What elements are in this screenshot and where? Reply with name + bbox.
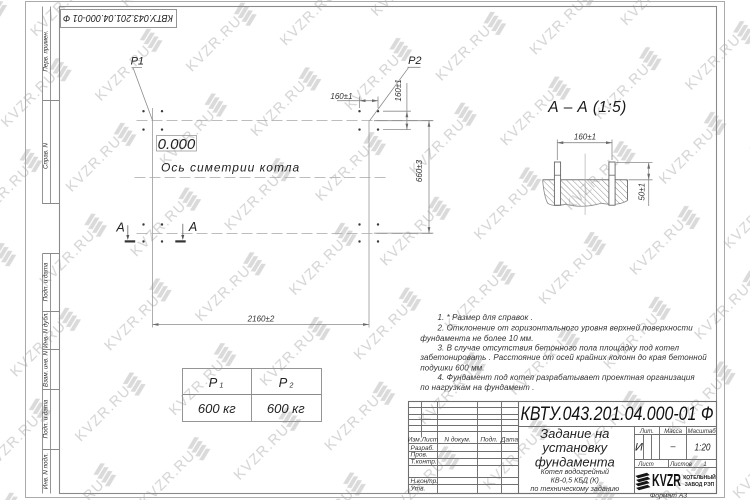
svg-text:КОТЕЛЬНЫЙ: КОТЕЛЬНЫЙ: [683, 473, 716, 481]
svg-text:фундамента не более 10 мм.: фундамента не более 10 мм.: [420, 334, 533, 343]
svg-text:160±1: 160±1: [394, 79, 403, 101]
svg-text:1: 1: [703, 462, 706, 468]
svg-text:Утв.: Утв.: [410, 486, 426, 493]
svg-text:Формат А3: Формат А3: [650, 492, 687, 499]
svg-text:2: 2: [289, 383, 294, 390]
svg-text:Подп. и дата: Подп. и дата: [43, 262, 50, 301]
svg-text:И: И: [635, 441, 643, 453]
svg-text:забетонировать . Расстояние от: забетонировать . Расстояние от осей край…: [419, 353, 707, 362]
svg-text:установку: установку: [541, 440, 608, 455]
svg-text:Перв. примен.: Перв. примен.: [43, 30, 50, 71]
svg-text:1:20: 1:20: [695, 443, 711, 454]
svg-text:–: –: [669, 441, 676, 451]
svg-text:Изм.Лист: Изм.Лист: [408, 436, 439, 443]
svg-text:Пров.: Пров.: [411, 452, 428, 459]
svg-text:160±1: 160±1: [574, 132, 596, 141]
svg-text:Подп. и дата: Подп. и дата: [43, 399, 50, 438]
svg-text:Р: Р: [209, 375, 218, 390]
svg-text:А: А: [188, 220, 197, 234]
svg-text:Листов: Листов: [669, 462, 692, 468]
svg-text:Подп.: Подп.: [480, 435, 497, 443]
svg-text:подушки 600 мм.: подушки 600 мм.: [420, 363, 484, 372]
svg-text:2160±2: 2160±2: [247, 314, 275, 323]
svg-text:Р: Р: [279, 375, 288, 390]
svg-text:1: 1: [220, 383, 224, 390]
svg-text:Лист: Лист: [637, 462, 653, 468]
svg-text:4. Фундамент под котел разраб: 4. Фундамент под котел разрабатывает про…: [438, 373, 696, 382]
svg-text:3. В случае отсутствия бетонн: 3. В случае отсутствия бетонного пола пл…: [438, 344, 680, 353]
svg-text:по техническому заданию: по техническому заданию: [530, 484, 619, 493]
svg-text:600 кг: 600 кг: [267, 401, 305, 416]
svg-text:Р1: Р1: [131, 55, 144, 67]
svg-text:KVZR: KVZR: [652, 470, 681, 490]
svg-text:Р2: Р2: [408, 55, 421, 67]
svg-text:1. * Размер для справок .: 1. * Размер для справок .: [438, 313, 533, 322]
svg-text:50±1: 50±1: [637, 183, 646, 201]
svg-text:N докум.: N докум.: [444, 435, 470, 443]
svg-text:Дата: Дата: [500, 436, 519, 443]
svg-text:А: А: [115, 221, 124, 235]
svg-text:Масштаб: Масштаб: [688, 429, 717, 435]
svg-text:Т.контр.: Т.контр.: [411, 459, 437, 466]
svg-text:Масса: Масса: [664, 429, 682, 435]
svg-text:Н.контр.: Н.контр.: [411, 478, 439, 485]
svg-text:Справ. N: Справ. N: [43, 143, 50, 169]
svg-text:Взам. инв. N: Взам. инв. N: [43, 350, 50, 387]
svg-text:660±3: 660±3: [415, 159, 424, 182]
svg-text:Ось симетрии котла: Ось симетрии котла: [161, 160, 300, 174]
svg-text:600 кг: 600 кг: [198, 401, 236, 416]
svg-text:КВ-0,5 КБД (К): КВ-0,5 КБД (К): [551, 475, 599, 484]
svg-text:А – А (1:5): А – А (1:5): [547, 99, 627, 116]
svg-text:0.000: 0.000: [158, 136, 196, 153]
svg-text:Инв. N подл.: Инв. N подл.: [43, 453, 50, 489]
svg-text:ЗАВОД РЭП: ЗАВОД РЭП: [685, 482, 715, 488]
svg-text:КВТУ.043.201.04.000-01 Ф: КВТУ.043.201.04.000-01 Ф: [521, 404, 714, 425]
svg-text:160±1: 160±1: [330, 92, 352, 101]
svg-text:Задание на: Задание на: [540, 426, 609, 441]
svg-text:2. Отклонение от горизонтальн: 2. Отклонение от горизонтального уровня …: [437, 324, 694, 333]
svg-text:КВТУ.043.201.04.000-01 Ф: КВТУ.043.201.04.000-01 Ф: [63, 12, 173, 24]
svg-text:по нагрузкам на фундамент .: по нагрузкам на фундамент .: [420, 383, 534, 392]
svg-text:Инв. N дубл.: Инв. N дубл.: [43, 312, 50, 348]
svg-text:Лит.: Лит.: [639, 429, 654, 435]
